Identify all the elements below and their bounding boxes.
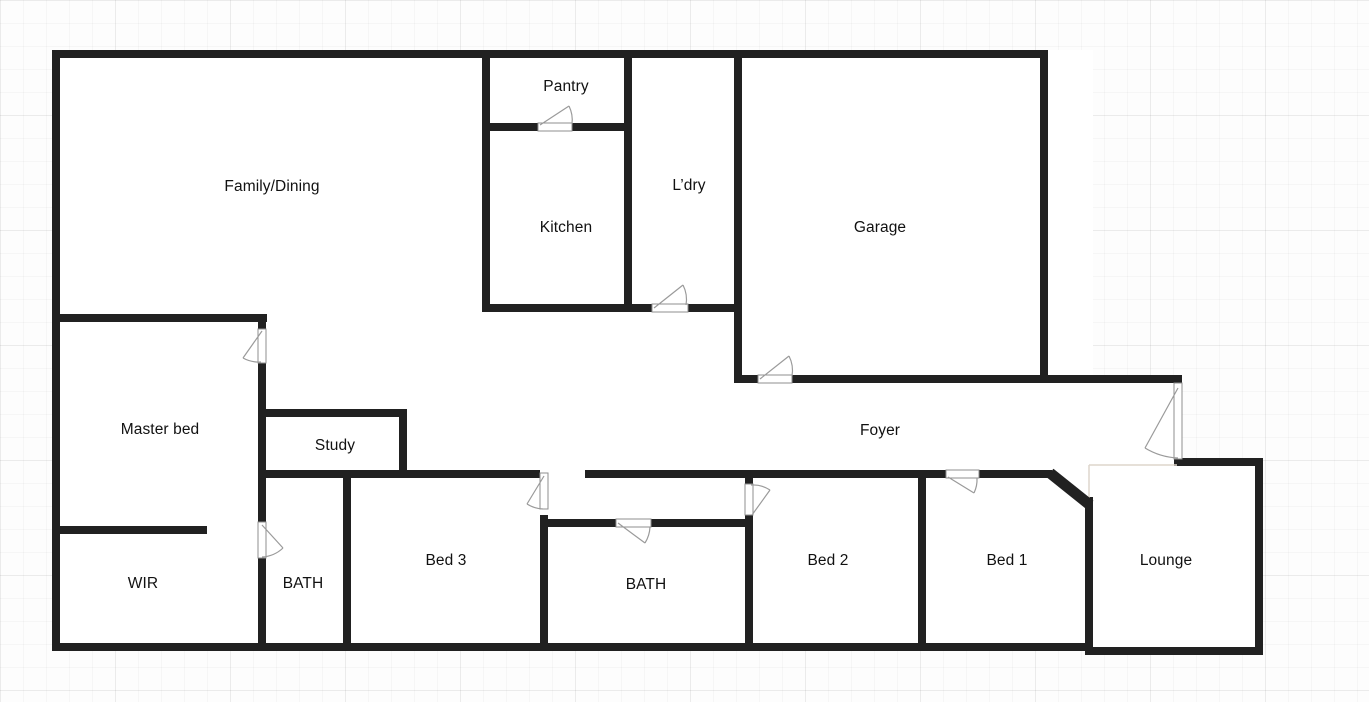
bed3-left xyxy=(343,470,351,651)
bath2-top-left xyxy=(548,519,616,527)
room-label-bed-1: Bed 1 xyxy=(986,552,1027,570)
bed2-bed1-divider xyxy=(918,470,926,651)
room-label-bath-1: BATH xyxy=(283,575,324,593)
hall-top-right xyxy=(979,470,1052,478)
room-label-study: Study xyxy=(315,437,355,455)
bath2-top-right xyxy=(651,519,745,527)
room-label-bath-2: BATH xyxy=(626,576,667,594)
hall-top-mid xyxy=(585,470,946,478)
wir-wall xyxy=(52,526,207,534)
room-label-lounge: Lounge xyxy=(1140,552,1192,570)
room-label-bed-3: Bed 3 xyxy=(425,552,466,570)
outer-left xyxy=(52,50,60,651)
room-label-foyer: Foyer xyxy=(860,422,900,440)
room-label-kitchen: Kitchen xyxy=(540,219,592,237)
garage-bottom-b xyxy=(792,375,1182,383)
room-label-family-dining: Family/Dining xyxy=(224,178,319,196)
kitchen-right xyxy=(624,50,632,312)
study-top xyxy=(262,409,407,417)
floorplan-canvas: Family/DiningPantryKitchenL’dryGarageMas… xyxy=(0,0,1369,702)
bed3-right-lower xyxy=(540,515,548,651)
room-label-wir: WIR xyxy=(128,575,158,593)
pantry-bottom-right xyxy=(572,123,632,131)
room-label-bed-2: Bed 2 xyxy=(807,552,848,570)
master-right-a xyxy=(258,314,266,329)
study-right xyxy=(399,409,407,478)
room-label-garage: Garage xyxy=(854,219,906,237)
lounge-top xyxy=(1174,458,1263,466)
kitchen-left xyxy=(482,50,490,312)
outer-bottom xyxy=(52,643,1093,651)
room-label-pantry: Pantry xyxy=(543,78,588,96)
bed2-divider-stub xyxy=(745,470,753,484)
garage-left xyxy=(734,50,742,383)
garage-right xyxy=(1040,50,1048,383)
floor-area xyxy=(52,50,1093,651)
garage-bottom-a xyxy=(734,375,758,383)
master-top xyxy=(52,314,267,322)
bed2-divider-lower xyxy=(745,515,753,651)
lounge-bottom xyxy=(1085,647,1263,655)
kitchen-bottom xyxy=(482,304,652,312)
room-label-master-bed: Master bed xyxy=(121,421,200,439)
pantry-bottom-left xyxy=(482,123,538,131)
lounge-left xyxy=(1085,497,1093,655)
outer-right xyxy=(1255,458,1263,655)
outer-top xyxy=(52,50,1048,58)
room-label-laundry: L’dry xyxy=(672,177,705,195)
master-right-b xyxy=(258,363,266,522)
floor-area xyxy=(1048,375,1182,465)
master-right-c xyxy=(258,558,266,651)
